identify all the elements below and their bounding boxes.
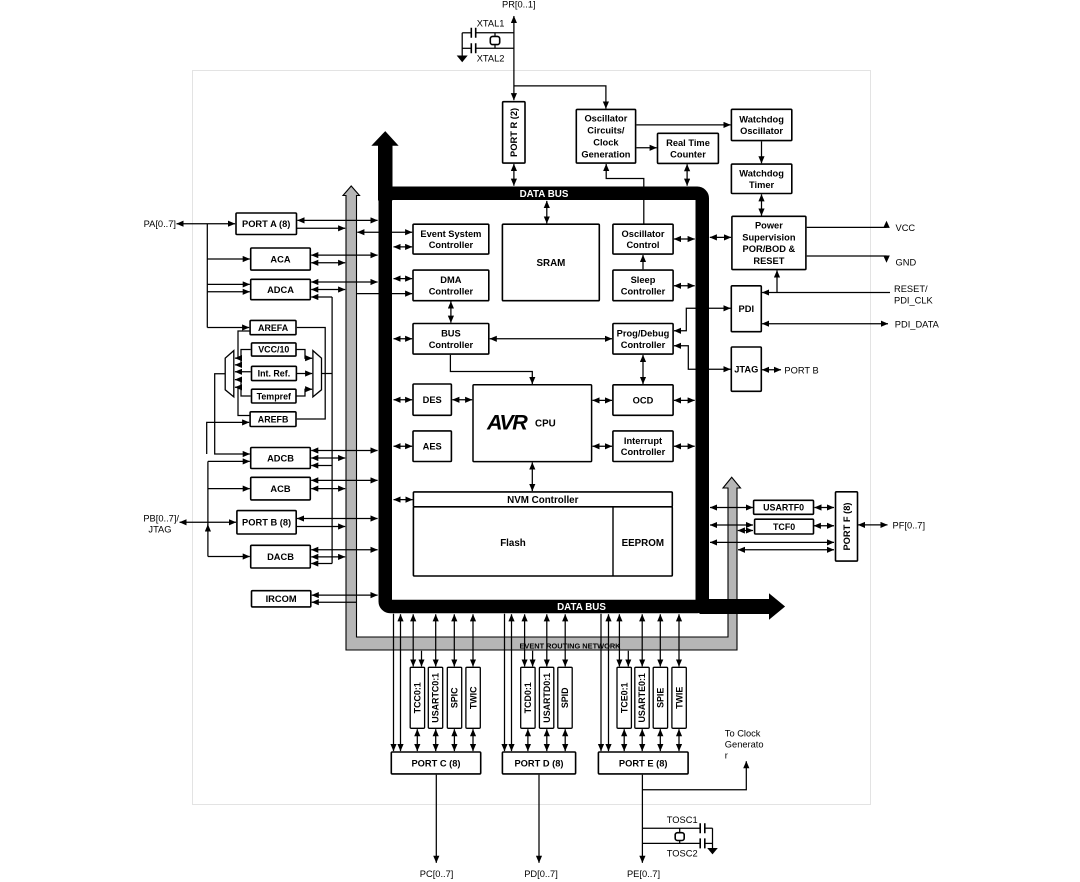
svg-text:AREFB: AREFB [258, 414, 289, 424]
svg-text:DACB: DACB [267, 552, 294, 562]
svg-text:Int. Ref.: Int. Ref. [258, 369, 291, 379]
svg-text:Timer: Timer [749, 180, 775, 190]
svg-text:ADCB: ADCB [267, 453, 294, 463]
svg-text:PR[0..1]: PR[0..1] [502, 0, 536, 10]
svg-text:CPU: CPU [535, 419, 556, 430]
svg-text:r: r [725, 751, 728, 761]
svg-text:DMA: DMA [440, 275, 461, 285]
svg-text:TCF0: TCF0 [773, 522, 795, 532]
svg-text:IRCOM: IRCOM [266, 594, 297, 604]
svg-text:To Clock: To Clock [725, 729, 761, 739]
svg-text:XTAL2: XTAL2 [477, 53, 505, 63]
svg-text:VCC: VCC [896, 223, 916, 233]
svg-text:SPIE: SPIE [656, 688, 666, 708]
svg-text:Generation: Generation [581, 150, 630, 160]
svg-text:Watchdog: Watchdog [739, 169, 784, 179]
svg-text:USARTF0: USARTF0 [763, 503, 804, 513]
svg-text:EVENT ROUTING NETWORK: EVENT ROUTING NETWORK [519, 641, 621, 650]
svg-text:AVR: AVR [486, 411, 528, 435]
svg-text:DES: DES [423, 395, 442, 405]
svg-text:TOSC1: TOSC1 [667, 815, 698, 825]
svg-text:PE[0..7]: PE[0..7] [627, 869, 660, 879]
svg-text:USARTD0:1: USARTD0:1 [542, 673, 552, 723]
svg-text:Prog/Debug: Prog/Debug [617, 329, 670, 339]
svg-text:Tempref: Tempref [257, 391, 291, 401]
svg-text:Counter: Counter [670, 149, 706, 159]
svg-text:TWIE: TWIE [674, 687, 684, 709]
svg-text:TWIC: TWIC [468, 686, 478, 709]
svg-text:SPIC: SPIC [450, 687, 460, 708]
svg-text:RESET: RESET [753, 256, 784, 266]
svg-text:PA[0..7]: PA[0..7] [144, 219, 176, 229]
svg-text:TCE0:1: TCE0:1 [619, 682, 629, 713]
svg-text:Oscillator: Oscillator [622, 229, 665, 239]
svg-text:Controller: Controller [429, 240, 474, 250]
svg-text:Watchdog: Watchdog [739, 115, 784, 125]
svg-text:PORT B: PORT B [784, 365, 818, 375]
svg-text:RESET/: RESET/ [894, 284, 928, 294]
svg-text:Controller: Controller [429, 286, 474, 296]
svg-text:PORT B (8): PORT B (8) [242, 518, 291, 528]
svg-text:TOSC2: TOSC2 [667, 849, 698, 859]
svg-text:XTAL1: XTAL1 [477, 19, 505, 29]
svg-text:Interrupt: Interrupt [624, 436, 662, 446]
svg-text:EEPROM: EEPROM [622, 538, 664, 549]
svg-text:GND: GND [896, 257, 917, 267]
svg-text:Circuits/: Circuits/ [587, 126, 625, 136]
svg-text:PORT E (8): PORT E (8) [619, 758, 668, 768]
svg-text:PC[0..7]: PC[0..7] [420, 869, 454, 879]
svg-text:JTAG: JTAG [734, 365, 758, 375]
svg-text:PDI_DATA: PDI_DATA [895, 319, 940, 329]
svg-text:Clock: Clock [593, 138, 619, 148]
svg-text:Flash: Flash [500, 538, 526, 549]
svg-text:BUS: BUS [441, 329, 461, 339]
svg-text:Supervision: Supervision [742, 232, 796, 242]
svg-text:DATA BUS: DATA BUS [557, 602, 606, 613]
svg-text:ACA: ACA [270, 254, 290, 264]
svg-text:Oscillator: Oscillator [740, 126, 783, 136]
svg-text:PORT C (8): PORT C (8) [411, 758, 460, 768]
svg-text:DATA BUS: DATA BUS [520, 189, 569, 200]
svg-text:PF[0..7]: PF[0..7] [893, 520, 926, 530]
svg-text:Real Time: Real Time [666, 138, 710, 148]
svg-text:PD[0..7]: PD[0..7] [524, 869, 558, 879]
svg-text:Event System: Event System [420, 229, 481, 239]
svg-text:PORT D (8): PORT D (8) [514, 758, 563, 768]
svg-text:Controller: Controller [429, 340, 474, 350]
svg-text:PDI_CLK: PDI_CLK [894, 295, 934, 305]
svg-text:POR/BOD &: POR/BOD & [743, 244, 796, 254]
svg-text:SRAM: SRAM [536, 258, 565, 269]
svg-text:VCC/10: VCC/10 [258, 345, 289, 355]
svg-text:USARTE0:1: USARTE0:1 [637, 673, 647, 722]
svg-text:Sleep: Sleep [631, 275, 656, 285]
svg-text:NVM Controller: NVM Controller [507, 495, 578, 506]
svg-text:ADCA: ADCA [267, 285, 294, 295]
svg-text:PORT R (2): PORT R (2) [509, 108, 519, 157]
svg-text:Controller: Controller [621, 447, 666, 457]
svg-text:SPID: SPID [560, 687, 570, 708]
svg-text:TCC0:1: TCC0:1 [413, 682, 423, 713]
svg-text:AREFA: AREFA [258, 323, 289, 333]
svg-text:PORT F (8): PORT F (8) [842, 502, 852, 550]
svg-text:PB[0..7]/: PB[0..7]/ [143, 513, 179, 523]
svg-text:Control: Control [626, 240, 659, 250]
svg-text:TCD0:1: TCD0:1 [523, 682, 533, 713]
svg-text:Generato: Generato [725, 740, 764, 750]
svg-text:JTAG: JTAG [148, 524, 171, 534]
svg-text:Power: Power [755, 220, 783, 230]
svg-text:Oscillator: Oscillator [584, 113, 627, 123]
svg-text:Controller: Controller [621, 340, 666, 350]
svg-text:Controller: Controller [621, 286, 666, 296]
svg-text:USARTC0:1: USARTC0:1 [431, 673, 441, 723]
svg-text:PORT A (8): PORT A (8) [242, 219, 290, 229]
svg-text:OCD: OCD [633, 395, 654, 405]
svg-text:ACB: ACB [270, 484, 290, 494]
svg-text:PDI: PDI [739, 304, 755, 314]
svg-text:AES: AES [423, 442, 442, 452]
